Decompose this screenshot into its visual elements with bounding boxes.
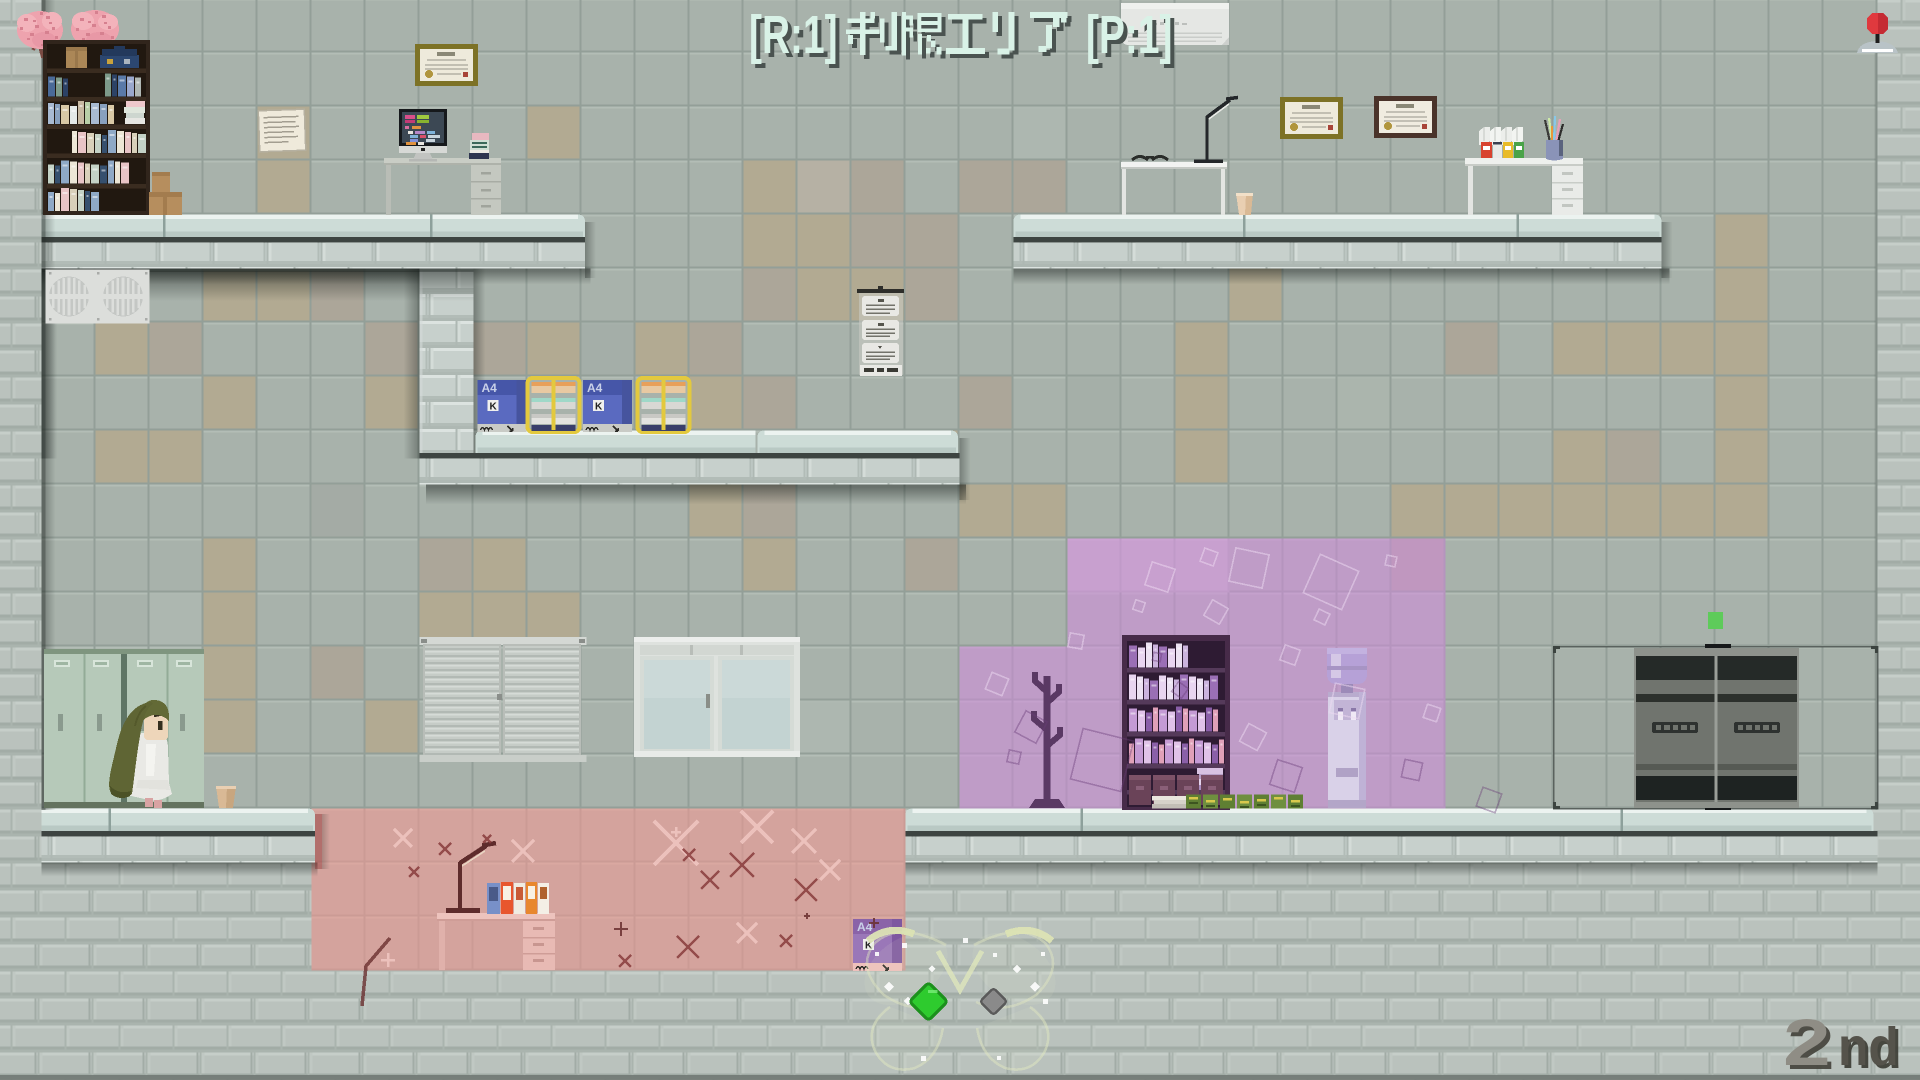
svg-text:K: K (595, 402, 603, 413)
svg-text:A4: A4 (482, 381, 498, 395)
svg-text:A4: A4 (587, 381, 603, 395)
svg-text:2: 2 (1783, 1006, 1831, 1079)
svg-text:[P:1]: [P:1] (1086, 4, 1172, 65)
svg-text:nd: nd (1838, 1016, 1899, 1076)
svg-text:K: K (490, 402, 498, 413)
svg-text:[R:1]: [R:1] (749, 4, 838, 65)
